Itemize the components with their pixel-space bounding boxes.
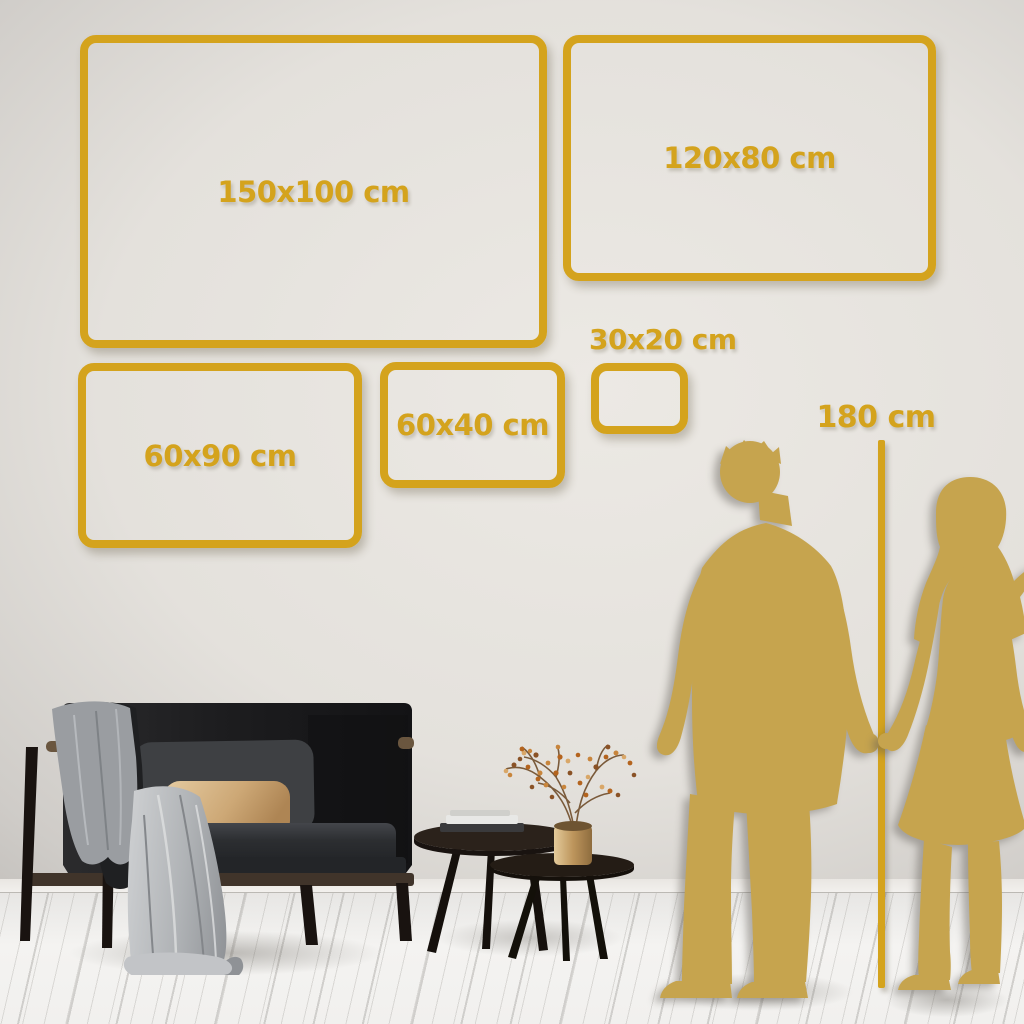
left-leg <box>682 794 735 984</box>
sofa-icon <box>8 695 433 975</box>
back-leg <box>968 841 1002 973</box>
brass-vase-icon <box>554 821 592 865</box>
size-label-120x80: 120x80 cm <box>663 141 836 175</box>
size-label-60x90: 60x90 cm <box>144 439 297 473</box>
left-hand <box>878 733 894 749</box>
man-silhouette-icon <box>642 438 882 1003</box>
size-frame-60x40: 60x40 cm <box>380 362 565 488</box>
right-foot <box>737 982 808 998</box>
coffee-tables-icon <box>410 735 645 965</box>
back-foot <box>958 970 1000 984</box>
size-label-150x100: 150x100 cm <box>217 175 409 209</box>
size-frame-30x20 <box>591 363 688 434</box>
skirt <box>898 725 1024 845</box>
small-table-legs <box>508 875 608 961</box>
neck <box>758 490 792 526</box>
head <box>948 484 992 538</box>
stacked-books-icon <box>440 810 524 832</box>
size-guide-scene: 150x100 cm 120x80 cm 60x90 cm 60x40 cm 3… <box>0 0 1024 1024</box>
height-marker-label: 180 cm <box>806 400 946 435</box>
left-hand <box>657 737 675 755</box>
torso <box>692 523 849 814</box>
size-frame-150x100: 150x100 cm <box>80 35 547 348</box>
left-foot <box>660 981 732 998</box>
front-foot <box>898 975 951 990</box>
berries <box>504 745 637 800</box>
woman-silhouette-icon <box>870 475 1024 1024</box>
right-leg <box>746 802 811 982</box>
size-frame-120x80: 120x80 cm <box>563 35 936 281</box>
size-label-60x40: 60x40 cm <box>396 408 549 442</box>
size-label-30x20: 30x20 cm <box>589 323 737 356</box>
front-leg <box>918 839 952 980</box>
size-frame-60x90: 60x90 cm <box>78 363 362 548</box>
